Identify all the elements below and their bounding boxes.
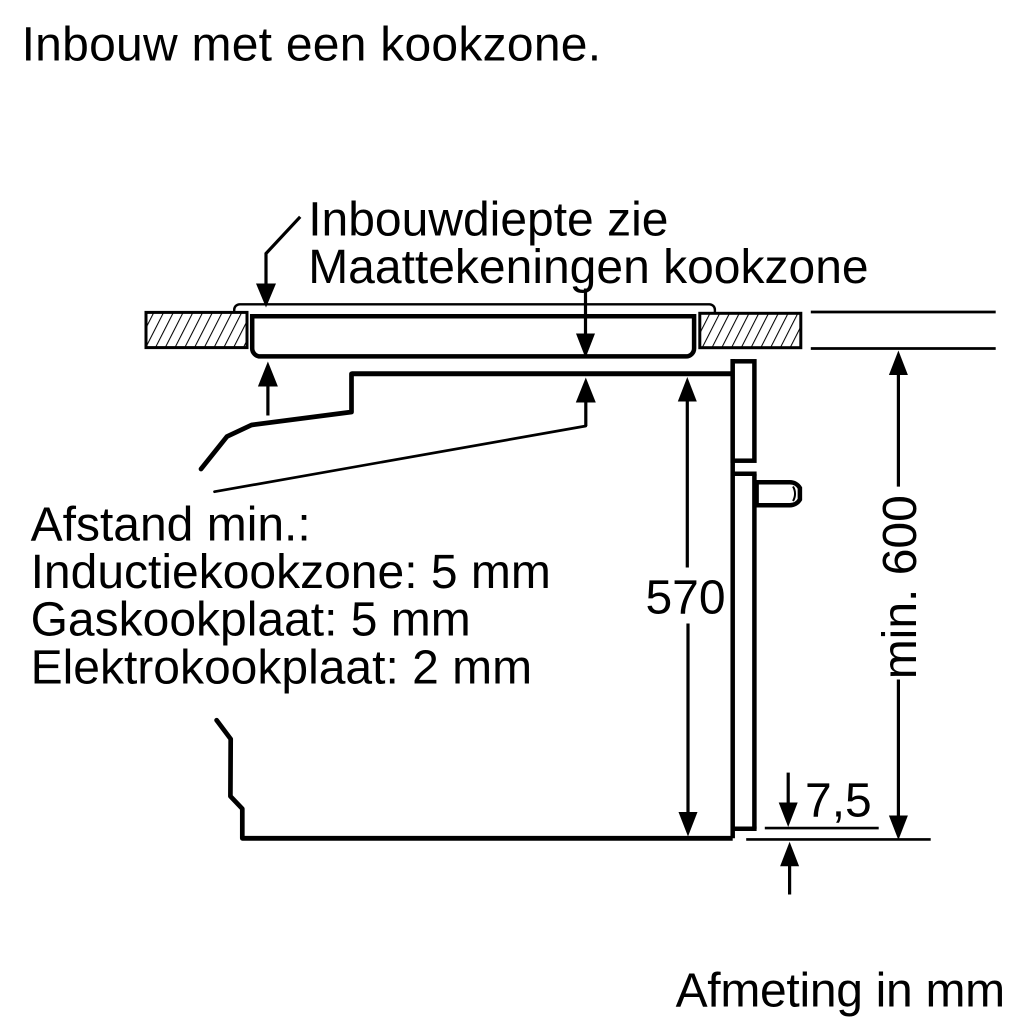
svg-text:Inbouw met een kookzone.: Inbouw met een kookzone. [22,19,602,72]
svg-text:570: 570 [645,572,725,625]
svg-text:Maattekeningen kookzone: Maattekeningen kookzone [308,241,868,294]
svg-text:Afstand min.:: Afstand min.: [31,499,311,552]
svg-text:min. 600: min. 600 [874,495,927,679]
svg-text:Inbouwdiepte zie: Inbouwdiepte zie [308,193,668,246]
svg-text:Elektrokookplaat: 2 mm: Elektrokookplaat: 2 mm [31,641,533,694]
svg-text:Afmeting in mm: Afmeting in mm [676,964,1005,1017]
svg-text:7,5: 7,5 [805,774,872,827]
svg-text:Gaskookplaat: 5 mm: Gaskookplaat: 5 mm [31,594,471,647]
svg-text:Inductiekookzone: 5 mm: Inductiekookzone: 5 mm [31,546,551,599]
